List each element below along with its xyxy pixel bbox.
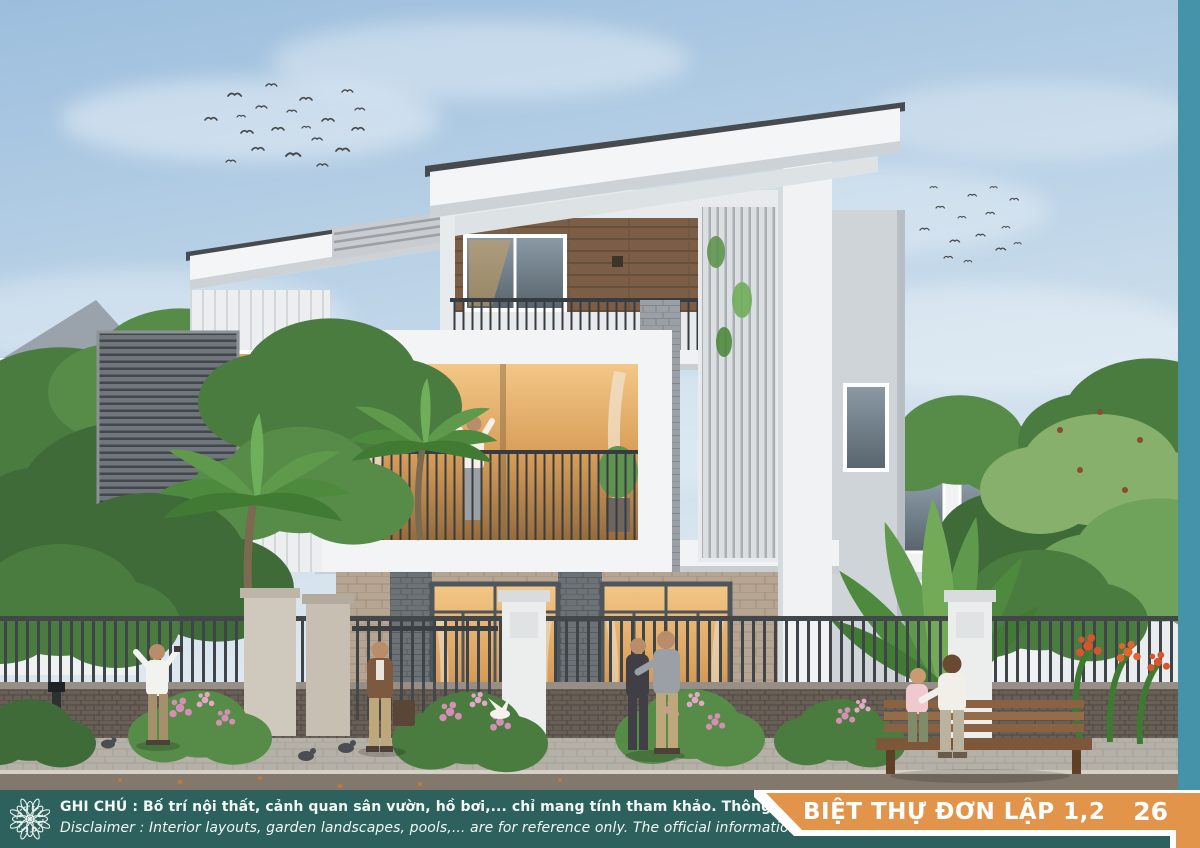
page-number: 26: [1133, 794, 1168, 830]
rosette-mandala-icon: [10, 798, 50, 840]
footer-bar: GHI CHÚ : Bố trí nội thất, cảnh quan sân…: [0, 790, 1200, 848]
right-edge-accent-strip: [1178, 0, 1200, 790]
footer-note-english: Disclaimer : Interior layouts, garden la…: [60, 818, 760, 839]
section-title-banner: BIỆT THỰ ĐƠN LẬP 1,2 26: [748, 790, 1200, 848]
footer-note-vietnamese: GHI CHÚ : Bố trí nội thất, cảnh quan sân…: [60, 797, 760, 818]
villa-louver-screen: [700, 205, 778, 560]
footer-note-text: GHI CHÚ : Bố trí nội thất, cảnh quan sân…: [60, 797, 760, 839]
brochure-page: GHI CHÚ : Bố trí nội thất, cảnh quan sân…: [0, 0, 1200, 848]
section-title: BIỆT THỰ ĐƠN LẬP 1,2: [803, 795, 1105, 829]
villa-rendering: [0, 0, 1200, 790]
